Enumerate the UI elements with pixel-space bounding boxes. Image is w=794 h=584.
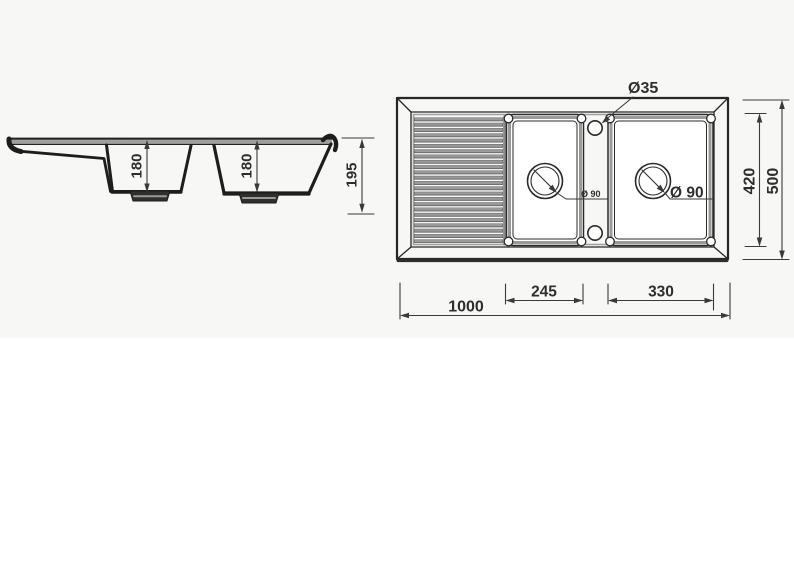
bowl-corner-marker <box>707 237 716 246</box>
drainboard-ribs <box>414 118 503 244</box>
bowl-corner-marker <box>577 114 586 123</box>
drawing-sheet: 180 180 195 <box>0 0 794 584</box>
sheet-background-lower <box>0 338 794 584</box>
bowl1-depth-label: 180 <box>129 153 146 178</box>
bowl-corner-marker <box>577 237 586 246</box>
right-bowl <box>606 114 716 246</box>
overall-length-label: 1000 <box>448 299 484 316</box>
small-drain-label: Ø 90 <box>581 189 601 199</box>
large-drain-label: Ø 90 <box>670 185 704 202</box>
tap-hole-bottom <box>588 226 602 240</box>
overall-width-label: 500 <box>765 168 782 195</box>
tap-hole-label: Ø35 <box>628 80 658 97</box>
bowl-corner-marker <box>606 237 615 246</box>
bowl2-depth-label: 180 <box>239 153 256 178</box>
bowl-corner-marker <box>707 114 716 123</box>
middle-bowl-width-label: 245 <box>531 284 557 301</box>
side-rim-band <box>8 139 332 143</box>
tap-hole-top <box>588 121 602 135</box>
right-bowl-width-label: 330 <box>648 284 674 301</box>
inner-width-label: 420 <box>742 168 759 195</box>
bowl-corner-marker <box>504 237 513 246</box>
overall-depth-label: 195 <box>344 162 361 187</box>
bowl-corner-marker <box>504 114 513 123</box>
